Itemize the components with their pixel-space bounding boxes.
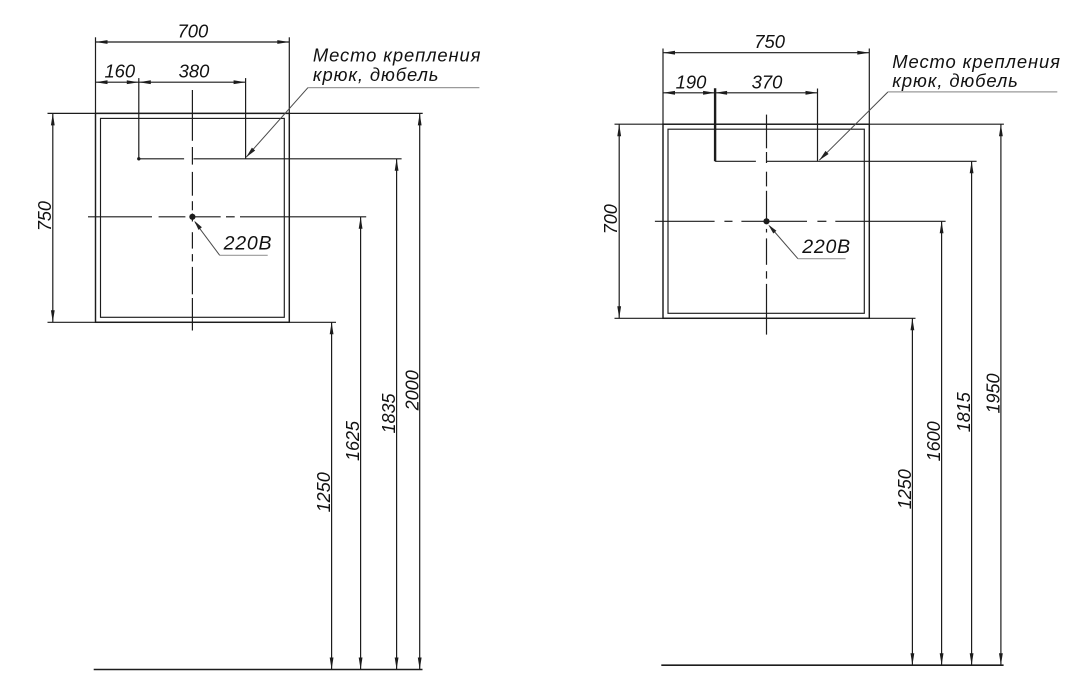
svg-text:220В: 220В xyxy=(801,236,851,258)
svg-text:370: 370 xyxy=(752,71,783,92)
svg-text:750: 750 xyxy=(754,31,785,52)
svg-text:Место крепления: Место крепления xyxy=(313,45,482,66)
svg-text:крюк, дюбель: крюк, дюбель xyxy=(892,70,1018,91)
svg-text:Место крепления: Место крепления xyxy=(892,51,1061,72)
svg-text:1250: 1250 xyxy=(895,469,915,509)
svg-text:700: 700 xyxy=(601,204,621,234)
svg-text:1950: 1950 xyxy=(984,373,1004,413)
svg-text:1250: 1250 xyxy=(314,472,334,512)
svg-text:1600: 1600 xyxy=(924,421,944,461)
svg-text:160: 160 xyxy=(104,61,135,82)
svg-text:190: 190 xyxy=(676,71,707,92)
svg-text:750: 750 xyxy=(35,201,55,231)
svg-text:1815: 1815 xyxy=(954,391,974,432)
svg-text:крюк, дюбель: крюк, дюбель xyxy=(313,64,439,85)
svg-text:380: 380 xyxy=(179,61,210,82)
svg-text:2000: 2000 xyxy=(402,370,422,411)
svg-text:700: 700 xyxy=(178,21,209,42)
svg-text:1835: 1835 xyxy=(379,392,399,433)
svg-text:1625: 1625 xyxy=(343,420,363,461)
svg-text:220В: 220В xyxy=(223,233,273,255)
